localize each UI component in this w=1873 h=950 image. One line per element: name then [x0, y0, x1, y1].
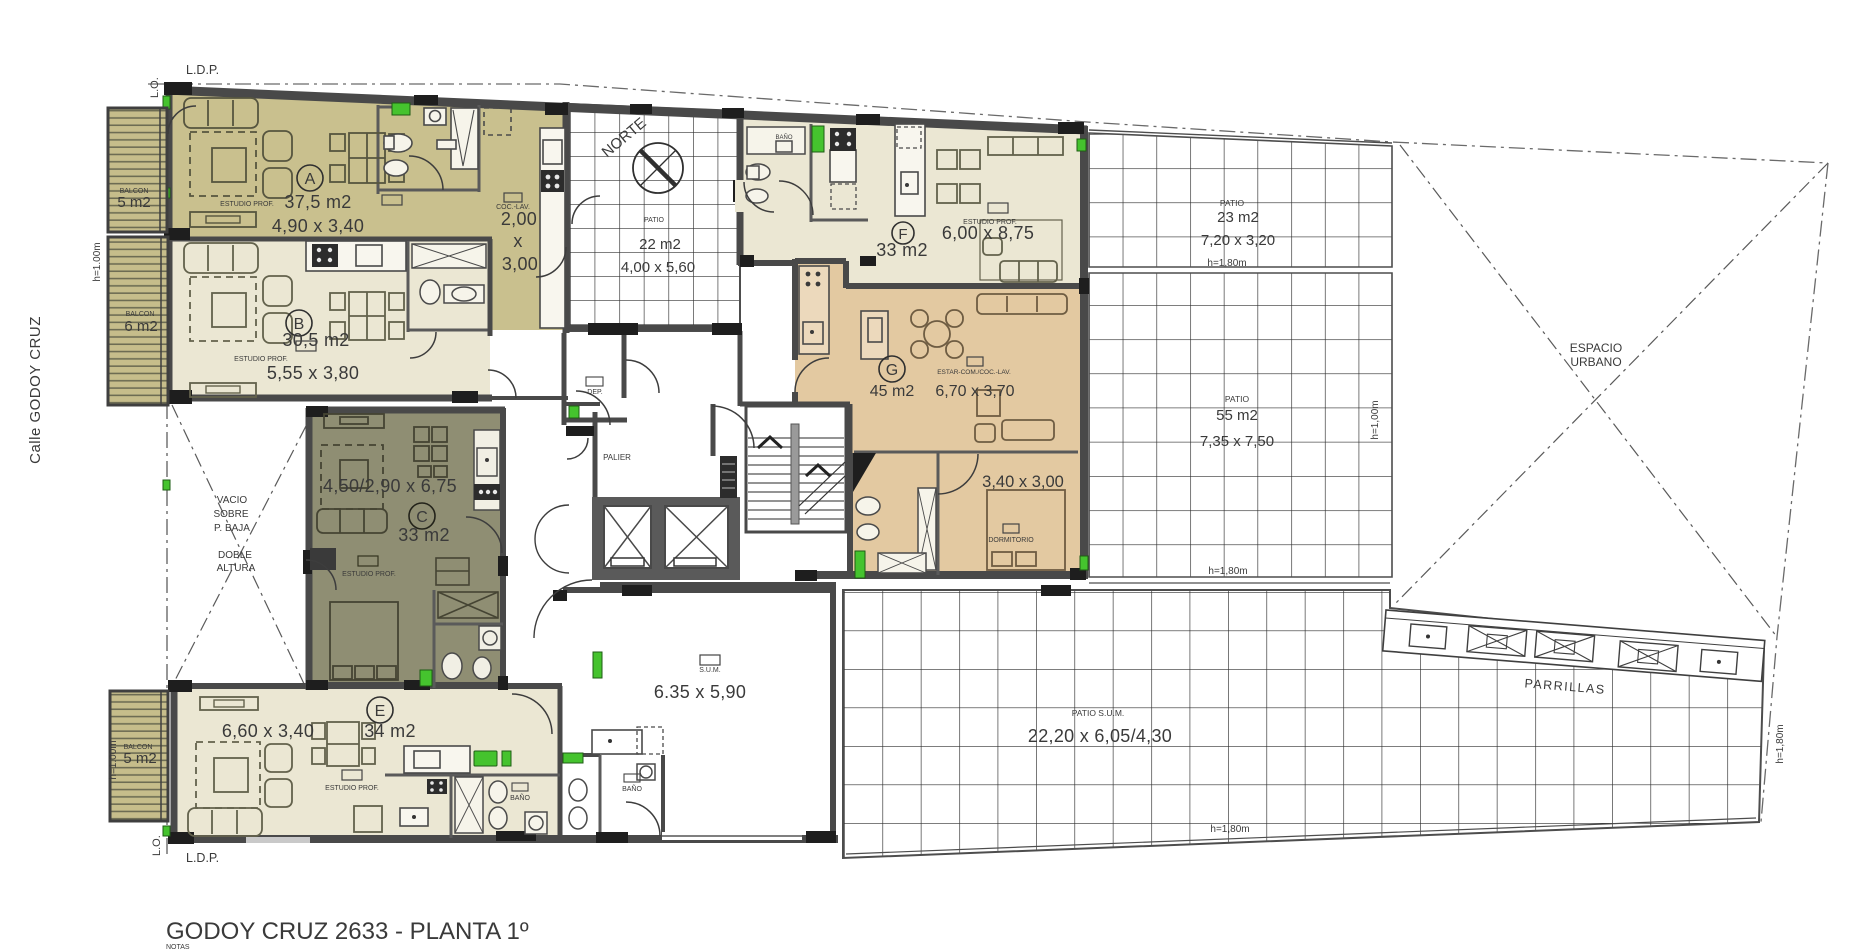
- svg-text:NOTAS: NOTAS: [166, 944, 190, 950]
- svg-text:6 m2: 6 m2: [124, 318, 157, 335]
- svg-text:P. BAJA: P. BAJA: [214, 523, 250, 534]
- svg-text:5 m2: 5 m2: [117, 194, 150, 211]
- svg-text:4,00 x 5,60: 4,00 x 5,60: [621, 259, 695, 276]
- svg-text:GODOY CRUZ 2633 - PLANTA 1º: GODOY CRUZ 2633 - PLANTA 1º: [166, 918, 529, 945]
- svg-text:ESPACIO: ESPACIO: [1570, 341, 1622, 355]
- svg-text:x: x: [513, 231, 522, 251]
- svg-text:4,50/2,90 x 6,75: 4,50/2,90 x 6,75: [323, 476, 457, 496]
- svg-text:L.O.: L.O.: [149, 77, 161, 98]
- svg-text:h=1,00m: h=1,00m: [1370, 400, 1381, 439]
- svg-text:PATIO: PATIO: [1220, 198, 1245, 208]
- svg-text:7,35 x 7,50: 7,35 x 7,50: [1200, 433, 1274, 450]
- svg-text:6,00 x 8,75: 6,00 x 8,75: [942, 223, 1034, 243]
- svg-text:7,20 x 3,20: 7,20 x 3,20: [1201, 232, 1275, 249]
- svg-text:h=1.00m: h=1.00m: [92, 242, 103, 281]
- svg-text:34 m2: 34 m2: [364, 721, 416, 741]
- svg-text:ALTURA: ALTURA: [217, 563, 256, 574]
- svg-text:C: C: [416, 509, 428, 526]
- svg-text:6,70 x 3,70: 6,70 x 3,70: [935, 383, 1014, 400]
- svg-text:L.D.P.: L.D.P.: [186, 851, 219, 865]
- svg-text:5,55 x 3,80: 5,55 x 3,80: [267, 363, 359, 383]
- svg-text:3,00: 3,00: [502, 254, 538, 274]
- svg-text:22 m2: 22 m2: [639, 236, 681, 253]
- svg-text:BAÑO: BAÑO: [510, 793, 530, 802]
- svg-text:A: A: [305, 171, 316, 188]
- svg-text:L.O.: L.O.: [151, 835, 163, 856]
- svg-text:PATIO: PATIO: [644, 217, 665, 224]
- svg-text:DOBLE: DOBLE: [218, 550, 252, 561]
- svg-text:BAÑO: BAÑO: [622, 784, 642, 793]
- svg-text:SOBRE: SOBRE: [213, 509, 248, 520]
- svg-text:PATIO S.U.M.: PATIO S.U.M.: [1072, 708, 1125, 718]
- svg-text:h=1.00m: h=1.00m: [108, 740, 119, 779]
- svg-text:BAÑO: BAÑO: [775, 134, 792, 141]
- svg-text:DORMITORIO: DORMITORIO: [988, 537, 1034, 544]
- svg-text:6.35 x 5,90: 6.35 x 5,90: [654, 682, 746, 702]
- svg-text:Calle GODOY CRUZ: Calle GODOY CRUZ: [27, 316, 44, 464]
- svg-text:22,20 x 6,05/4,30: 22,20 x 6,05/4,30: [1028, 726, 1172, 746]
- svg-text:h=1,80m: h=1,80m: [1775, 724, 1786, 763]
- svg-text:33 m2: 33 m2: [398, 525, 450, 545]
- svg-text:S.U.M.: S.U.M.: [699, 667, 720, 674]
- svg-text:5 m2: 5 m2: [123, 750, 156, 767]
- svg-text:23 m2: 23 m2: [1217, 209, 1259, 226]
- svg-text:h=1,80m: h=1,80m: [1208, 566, 1247, 577]
- svg-text:E: E: [375, 703, 386, 720]
- svg-text:BALCON: BALCON: [126, 311, 155, 318]
- svg-text:URBANO: URBANO: [1570, 355, 1621, 369]
- svg-text:ESTUDIO PROF.: ESTUDIO PROF.: [325, 785, 379, 792]
- svg-text:G: G: [886, 362, 898, 379]
- svg-text:ESTUDIO PROF.: ESTUDIO PROF.: [342, 571, 396, 578]
- svg-text:h=1,80m: h=1,80m: [1207, 258, 1246, 269]
- svg-text:2,00: 2,00: [501, 209, 537, 229]
- svg-text:ESTAR-COM./COC.-LAV.: ESTAR-COM./COC.-LAV.: [937, 369, 1011, 376]
- svg-text:33 m2: 33 m2: [876, 240, 928, 260]
- svg-text:PALIER: PALIER: [603, 453, 631, 462]
- svg-text:L.D.P.: L.D.P.: [186, 63, 219, 77]
- svg-text:VACIO: VACIO: [217, 495, 248, 506]
- svg-text:37,5 m2: 37,5 m2: [284, 192, 351, 212]
- svg-text:PATIO: PATIO: [1225, 394, 1250, 404]
- svg-text:ESTUDIO PROF.: ESTUDIO PROF.: [220, 201, 274, 208]
- svg-text:6,60 x 3,40: 6,60 x 3,40: [222, 721, 314, 741]
- svg-text:55 m2: 55 m2: [1216, 407, 1258, 424]
- svg-text:3,40 x 3,00: 3,40 x 3,00: [982, 473, 1064, 491]
- svg-text:ESTUDIO PROF.: ESTUDIO PROF.: [234, 356, 288, 363]
- svg-text:DEP.: DEP.: [587, 389, 602, 396]
- svg-text:45 m2: 45 m2: [870, 383, 915, 400]
- svg-text:4,90 x 3,40: 4,90 x 3,40: [272, 216, 364, 236]
- svg-text:h=1,80m: h=1,80m: [1210, 824, 1249, 835]
